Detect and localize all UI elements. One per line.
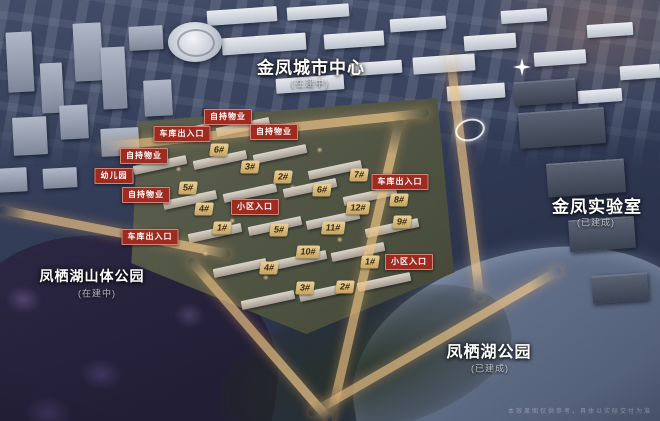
building-tag-5: 5# bbox=[178, 182, 198, 195]
building-tag-8: 8# bbox=[389, 194, 409, 207]
self-held-property-badge-1: 自持物业 bbox=[204, 109, 252, 125]
kindergarten-badge: 幼儿园 bbox=[95, 168, 134, 184]
building-tag-3: 3# bbox=[240, 161, 260, 174]
self-held-property-badge-3: 自持物业 bbox=[120, 148, 168, 164]
building-tag-2: 2# bbox=[335, 281, 355, 294]
area-title-fengqi-lake-mountain-park: 凤栖湖山体公园 bbox=[40, 266, 145, 286]
area-title-jinfeng-laboratory: 金凤实验室 bbox=[552, 193, 642, 218]
garage-entrance-badge-1: 车库出入口 bbox=[154, 126, 211, 142]
area-subtitle-jinfeng-city-center: (在建中) bbox=[291, 77, 329, 90]
building-tag-2: 2# bbox=[273, 171, 293, 184]
building-tag-9: 9# bbox=[392, 216, 412, 229]
building-tag-1: 1# bbox=[360, 256, 380, 269]
building-tag-4: 4# bbox=[259, 262, 279, 275]
community-entrance-badge-2: 小区入口 bbox=[385, 254, 433, 270]
building-tag-6: 6# bbox=[209, 144, 229, 157]
area-subtitle-jinfeng-laboratory: (已建成) bbox=[577, 216, 615, 229]
building-tag-11: 11# bbox=[321, 222, 345, 235]
self-held-property-badge-2: 自持物业 bbox=[250, 124, 298, 140]
building-tag-4: 4# bbox=[194, 203, 214, 216]
building-tag-10: 10# bbox=[296, 246, 321, 259]
garage-entrance-badge-3: 车库出入口 bbox=[122, 229, 179, 245]
building-tag-3: 3# bbox=[295, 282, 315, 295]
area-subtitle-fengqi-lake-park: (已建成) bbox=[471, 362, 509, 375]
area-subtitle-fengqi-lake-mountain-park: (在建中) bbox=[78, 287, 116, 300]
building-tag-5: 5# bbox=[269, 224, 289, 237]
annotation-layer: 金凤城市中心(在建中)金凤实验室(已建成)凤栖湖山体公园(在建中)凤栖湖公园(已… bbox=[0, 0, 660, 421]
aerial-masterplan-render: 金凤城市中心(在建中)金凤实验室(已建成)凤栖湖山体公园(在建中)凤栖湖公园(已… bbox=[0, 0, 660, 421]
self-held-property-badge-4: 自持物业 bbox=[122, 187, 170, 203]
area-title-fengqi-lake-park: 凤栖湖公园 bbox=[446, 338, 531, 362]
building-tag-7: 7# bbox=[349, 169, 369, 182]
watermark-text: 本效果图仅供参考，具体以实际交付为准 bbox=[508, 406, 652, 415]
building-tag-6: 6# bbox=[312, 184, 332, 197]
community-entrance-badge-1: 小区入口 bbox=[231, 199, 279, 215]
area-title-jinfeng-city-center: 金凤城市中心 bbox=[257, 54, 365, 79]
building-tag-1: 1# bbox=[212, 222, 232, 235]
garage-entrance-badge-2: 车库出入口 bbox=[372, 174, 429, 190]
building-tag-12: 12# bbox=[346, 202, 371, 215]
